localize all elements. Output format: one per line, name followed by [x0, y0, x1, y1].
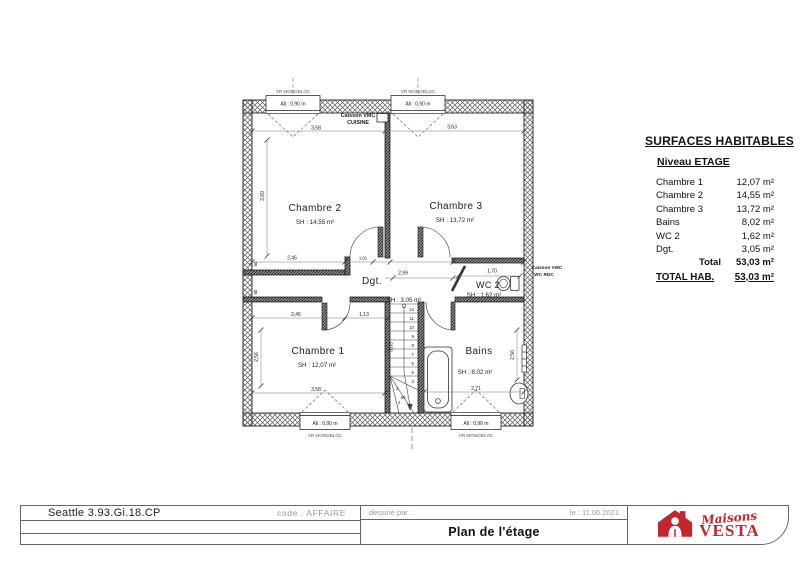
- code-label: code : AFFAIRE: [277, 508, 360, 518]
- window-sill-label: All : 0,90 m: [280, 102, 305, 108]
- room-chambre3: Chambre 3: [429, 201, 482, 212]
- vmc-box: [377, 114, 388, 123]
- door-chambre1: [322, 303, 327, 330]
- title-block-reference-cell: Seattle 3.93.Gi.18.CP code : AFFAIRE: [21, 506, 361, 544]
- svg-text:2: 2: [398, 400, 401, 405]
- surface-row: Chambre 1 12,07 m²: [645, 176, 787, 189]
- vmc-kitchen-line2: CUISINE: [347, 120, 369, 126]
- svg-text:2,56: 2,56: [510, 350, 516, 360]
- svg-text:3,58: 3,58: [311, 387, 321, 393]
- svg-text:SH : 8,02 m²: SH : 8,02 m²: [458, 369, 493, 376]
- surfaces-panel: SURFACES HABITABLES Niveau ETAGE Chambre…: [645, 134, 787, 284]
- svg-text:60: 60: [253, 261, 258, 266]
- svg-text:85: 85: [401, 395, 406, 400]
- svg-text:3,03: 3,03: [389, 342, 395, 352]
- radiator: [522, 345, 527, 372]
- svg-text:2,45: 2,45: [291, 312, 301, 318]
- room-dgt: Dgt.: [362, 276, 382, 287]
- svg-text:1,70: 1,70: [487, 269, 497, 275]
- svg-text:8: 8: [412, 343, 415, 348]
- svg-text:3,60: 3,60: [260, 191, 266, 201]
- room-chambre1: Chambre 1: [291, 346, 344, 357]
- level-label: Niveau ETAGE: [657, 156, 787, 168]
- total-row: Total 53,03 m²: [645, 256, 787, 269]
- title-block-title-cell: dessiné par : le : 11.06.2021 Plan de l'…: [361, 506, 628, 544]
- door-bains: [451, 302, 455, 330]
- window-sill-label: All : 0,90 m: [405, 102, 430, 108]
- svg-text:60: 60: [253, 289, 258, 294]
- svg-text:2,99: 2,99: [398, 271, 408, 277]
- svg-text:3,63: 3,63: [447, 125, 457, 131]
- door-chambre2: [378, 227, 383, 257]
- surface-row: Dgt. 3,05 m²: [645, 243, 787, 256]
- svg-text:SH : 13,72 m²: SH : 13,72 m²: [436, 217, 474, 224]
- title-block-empty-row: [21, 534, 360, 544]
- window-sill-label: All : 0,90 m: [463, 421, 488, 427]
- room-wc2: WC 2: [476, 280, 500, 290]
- svg-text:2,71: 2,71: [471, 386, 481, 392]
- room-labels: Chambre 2 SH : 14,55 m² Chambre 3 SH : 1…: [288, 201, 501, 376]
- drawn-by-label: dessiné par :: [369, 508, 412, 517]
- surface-row: WC 2 1,62 m²: [645, 230, 787, 243]
- surface-row: Bains 8,02 m²: [645, 216, 787, 229]
- svg-text:9: 9: [412, 334, 415, 339]
- vesta-logo-text: Maisons VESTA: [699, 512, 759, 539]
- vmc-wc-line2: WC RDC: [534, 272, 554, 278]
- interior-walls: [243, 113, 524, 413]
- svg-text:6: 6: [412, 361, 415, 366]
- svg-text:SH : 3,05 m²: SH : 3,05 m²: [387, 297, 422, 304]
- svg-text:11: 11: [409, 316, 414, 321]
- drawing-sheet: VR MONOBLOC All : 0,90 m VR MONOBLOC All…: [0, 0, 800, 566]
- surfaces-title: SURFACES HABITABLES: [645, 134, 787, 148]
- svg-text:3,58: 3,58: [311, 126, 321, 132]
- vesta-house-icon: [656, 508, 694, 543]
- svg-text:4: 4: [412, 379, 415, 384]
- window-top-right: VR MONOBLOC All : 0,90 m: [391, 78, 445, 137]
- svg-text:7: 7: [412, 352, 415, 357]
- title-block-logo-cell: Maisons VESTA: [628, 506, 788, 544]
- room-bains: Bains: [465, 346, 492, 357]
- bathtub: [424, 347, 452, 412]
- svg-text:2,56: 2,56: [254, 352, 260, 362]
- window-type-label: VR MONOBLOC: [276, 89, 311, 94]
- room-chambre2: Chambre 2: [288, 203, 341, 214]
- window-type-label: VR MONOBLOC: [401, 89, 436, 94]
- svg-text:12: 12: [409, 307, 414, 312]
- title-block-empty-row: [21, 521, 360, 534]
- svg-text:SH : 14,55 m²: SH : 14,55 m²: [296, 219, 334, 226]
- surface-row: Chambre 2 14,55 m²: [645, 189, 787, 202]
- window-bottom-right: All : 0,90 m VR MONOBLOC: [451, 390, 501, 438]
- svg-text:73: 73: [344, 256, 349, 261]
- window-sill-label: All : 0,90 m: [312, 421, 337, 427]
- surface-row: Chambre 3 13,72 m²: [645, 203, 787, 216]
- svg-text:10: 10: [409, 325, 414, 330]
- total-hab-row: TOTAL HAB. 53,03 m²: [645, 271, 787, 284]
- svg-text:5: 5: [412, 370, 415, 375]
- window-type-label: VR MONOBLOC: [459, 433, 494, 438]
- svg-text:SH : 1,62 m²: SH : 1,62 m²: [467, 292, 502, 299]
- doors: [322, 227, 465, 330]
- door-chambre3: [418, 227, 423, 257]
- washbasin: [510, 383, 528, 404]
- window-type-label: VR MONOBLOC: [308, 433, 343, 438]
- svg-text:1,01: 1,01: [359, 256, 368, 261]
- door-wc2: [452, 266, 465, 291]
- svg-text:2,45: 2,45: [287, 256, 297, 262]
- drawing-title: Plan de l'étage: [361, 520, 627, 544]
- project-reference: Seattle 3.93.Gi.18.CP: [21, 507, 161, 519]
- svg-text:1,13: 1,13: [359, 312, 369, 318]
- vmc-wc-line1: Caisson VMC: [532, 265, 563, 271]
- title-block: Seattle 3.93.Gi.18.CP code : AFFAIRE des…: [20, 505, 789, 545]
- vmc-kitchen-line1: Caisson VMC: [341, 113, 376, 119]
- window-bottom-left: All : 0,90 m VR MONOBLOC: [300, 390, 350, 438]
- toilet: [497, 277, 519, 291]
- svg-text:3: 3: [396, 386, 399, 391]
- date-label: le : 11.06.2021: [570, 508, 619, 517]
- svg-text:SH : 12,07 m²: SH : 12,07 m²: [298, 362, 336, 369]
